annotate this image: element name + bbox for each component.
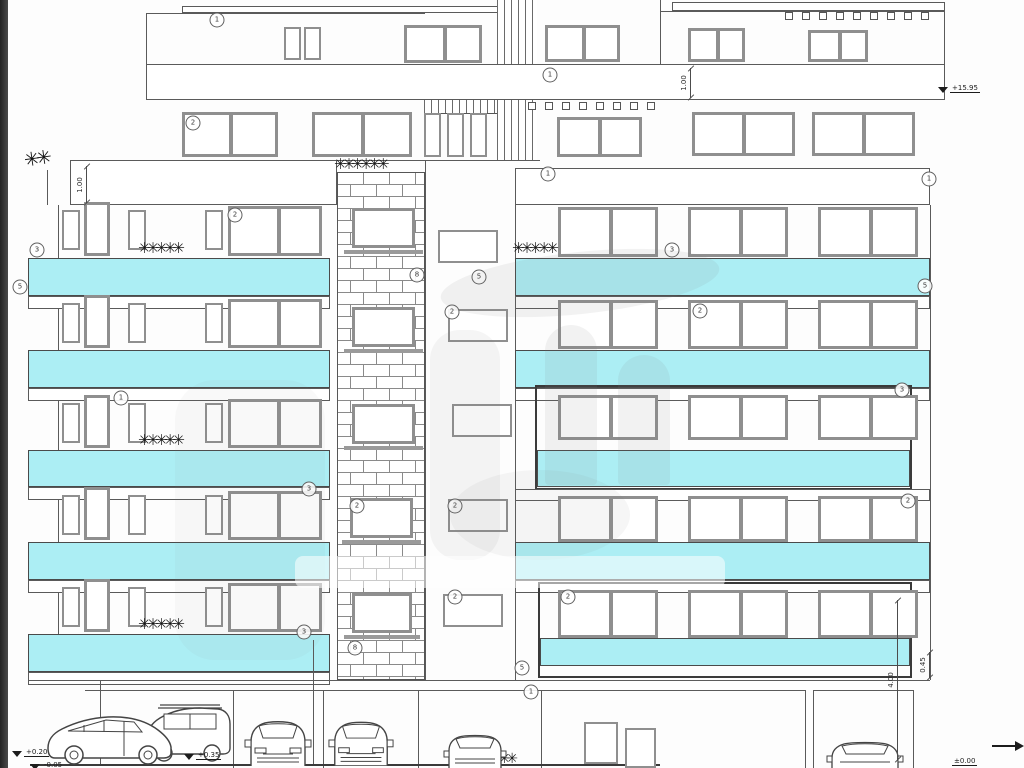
level-label: -0.05 — [42, 761, 64, 768]
elevation-drawing-canvas: ✳✳ ✳✳✳✳✳✳ ✳✳✳✳✳ — [0, 0, 1024, 768]
wall-line — [930, 205, 931, 680]
window — [128, 303, 146, 343]
level-label: ±0.00 — [952, 757, 977, 766]
circle-note: 2 — [448, 590, 463, 605]
dimension-label: 0.45 — [919, 657, 927, 673]
railing-post — [802, 12, 810, 20]
level-label: +0.35 — [196, 751, 221, 760]
window — [584, 722, 618, 764]
window — [808, 30, 868, 62]
car-front-icon — [826, 740, 904, 768]
railing-post — [647, 102, 655, 110]
circle-note: 3 — [297, 625, 312, 640]
window — [352, 208, 415, 248]
circle-note: 1 — [210, 13, 225, 28]
dimension-line — [86, 166, 87, 203]
window — [352, 404, 415, 444]
level-marker: +0.20 — [12, 748, 49, 757]
window — [692, 112, 795, 156]
window — [818, 300, 918, 349]
railing-post — [887, 12, 895, 20]
car-front-icon — [243, 712, 313, 768]
balcony-band — [537, 450, 910, 487]
balcony-door — [84, 579, 110, 632]
balcony-band — [28, 350, 330, 388]
dimension-line — [929, 652, 930, 678]
window — [228, 299, 322, 348]
level-triangle-icon — [12, 751, 22, 757]
railing-post — [562, 102, 570, 110]
floor-slab — [28, 672, 330, 685]
circle-note: 1 — [543, 68, 558, 83]
window — [625, 728, 656, 768]
window — [304, 27, 321, 60]
parapet — [515, 168, 930, 205]
level-marker: -0.05 — [30, 761, 64, 768]
window — [62, 495, 80, 535]
plant-icon: ✳✳✳✳✳ — [512, 241, 586, 256]
window — [205, 210, 223, 250]
balcony-band — [515, 350, 930, 388]
window — [557, 117, 642, 157]
balcony-door — [84, 202, 110, 256]
circle-note: 8 — [410, 268, 425, 283]
wall-line — [660, 0, 661, 65]
circle-note: 3 — [665, 243, 680, 258]
railing-post — [579, 102, 587, 110]
window — [818, 207, 918, 257]
window — [545, 25, 620, 62]
stall-divider — [541, 690, 542, 768]
plant-icon: ✳✳✳✳✳ — [138, 241, 206, 256]
roof-railing — [785, 12, 929, 20]
balcony-door — [84, 395, 110, 448]
window — [438, 230, 498, 263]
level-marker: +0.35 — [184, 751, 221, 760]
circle-note: 1 — [114, 391, 129, 406]
balcony-band — [28, 634, 330, 672]
window — [404, 25, 482, 63]
window — [62, 303, 80, 343]
roof-slab — [672, 2, 945, 11]
railing-post — [613, 102, 621, 110]
railing-post — [545, 102, 553, 110]
balcony-door — [84, 487, 110, 540]
reference-line — [313, 640, 314, 765]
level-marker: +15.95 — [938, 84, 980, 93]
railing-post — [630, 102, 638, 110]
circle-note: 8 — [348, 641, 363, 656]
plant-stem — [47, 170, 48, 205]
dimension-label: 1.00 — [76, 177, 84, 193]
dimension-label: 1.00 — [680, 75, 688, 91]
window — [558, 300, 658, 349]
stall-divider — [418, 690, 419, 768]
balcony-band — [515, 258, 930, 296]
circle-note: 2 — [901, 494, 916, 509]
window — [688, 207, 788, 257]
window — [818, 590, 918, 638]
wall-line — [146, 13, 425, 14]
roof-slab — [182, 6, 500, 13]
railing-post — [785, 12, 793, 20]
level-marker: ±0.00 — [952, 757, 977, 766]
plant-icon: ✳✳✳✳✳ — [138, 433, 206, 448]
balcony-door — [84, 295, 110, 348]
car-front-icon — [327, 712, 395, 768]
wall-line — [425, 160, 426, 680]
dimension-label: 4.00 — [887, 672, 895, 688]
window — [688, 395, 788, 440]
ground-floor-line — [28, 680, 930, 681]
window — [228, 491, 322, 540]
window — [205, 303, 223, 343]
window — [205, 403, 223, 443]
window — [205, 587, 223, 627]
circle-note: 2 — [561, 590, 576, 605]
balcony-band — [540, 638, 910, 666]
stall-divider — [323, 690, 324, 768]
plant-icon: ✳✳✳✳✳✳ — [334, 157, 426, 172]
circle-note: 3 — [895, 383, 910, 398]
window — [688, 590, 788, 638]
wall-line — [944, 11, 945, 64]
window — [818, 395, 918, 440]
circle-note: 2 — [186, 116, 201, 131]
level-label: +15.95 — [950, 84, 980, 93]
circle-note: 2 — [228, 208, 243, 223]
railing-post — [904, 12, 912, 20]
plant-icon: ✳✳ — [23, 144, 77, 170]
balcony-band — [28, 542, 330, 580]
circle-note: 5 — [918, 279, 933, 294]
balcony-band — [28, 450, 330, 487]
terrace-railing — [528, 102, 655, 110]
wall-line — [146, 13, 147, 65]
railing-post — [819, 12, 827, 20]
stall-divider — [813, 690, 814, 768]
scan-page-edge — [0, 0, 8, 768]
window — [352, 593, 412, 633]
window — [62, 403, 80, 443]
level-triangle-icon — [184, 754, 194, 760]
railing-post — [870, 12, 878, 20]
circle-note: 3 — [302, 482, 317, 497]
circle-note: 2 — [448, 499, 463, 514]
railing-post — [921, 12, 929, 20]
car-front-icon — [443, 733, 507, 768]
car-side-icon — [36, 698, 181, 766]
level-triangle-icon — [938, 87, 948, 93]
window — [62, 210, 80, 250]
dimension-line — [690, 68, 691, 98]
circle-note: 3 — [30, 243, 45, 258]
window — [812, 112, 915, 156]
window — [452, 404, 512, 437]
window — [424, 113, 441, 157]
circle-note: 1 — [524, 685, 539, 700]
window — [205, 495, 223, 535]
stall-line — [813, 690, 913, 691]
circle-note: 2 — [350, 499, 365, 514]
level-label: +0.20 — [24, 748, 49, 757]
window — [558, 496, 658, 542]
window — [352, 307, 415, 347]
window — [228, 399, 322, 448]
railing-post — [836, 12, 844, 20]
circle-note: 5 — [515, 661, 530, 676]
window — [688, 28, 745, 62]
stall-line — [541, 690, 805, 691]
circle-note: 2 — [445, 305, 460, 320]
railing-post — [528, 102, 536, 110]
window — [558, 395, 658, 440]
balcony-band — [28, 258, 330, 296]
plant-icon: ✳✳✳✳✳ — [138, 617, 206, 632]
level-triangle-icon — [30, 764, 40, 768]
parapet — [70, 160, 337, 205]
circle-note: 5 — [472, 270, 487, 285]
railing-post — [853, 12, 861, 20]
window — [470, 113, 487, 157]
railing-post — [596, 102, 604, 110]
stall-divider — [913, 690, 914, 768]
dimension-line — [897, 600, 898, 760]
window — [312, 112, 412, 157]
window — [688, 496, 788, 542]
circle-note: 2 — [693, 304, 708, 319]
stall-divider — [805, 690, 806, 768]
circle-note: 1 — [541, 167, 556, 182]
window — [128, 495, 146, 535]
circle-note: 1 — [922, 172, 937, 187]
circle-note: 5 — [13, 280, 28, 295]
window — [447, 113, 464, 157]
window — [62, 587, 80, 627]
direction-arrow-icon — [992, 745, 1016, 747]
window — [284, 27, 301, 60]
balcony-band — [515, 542, 930, 580]
